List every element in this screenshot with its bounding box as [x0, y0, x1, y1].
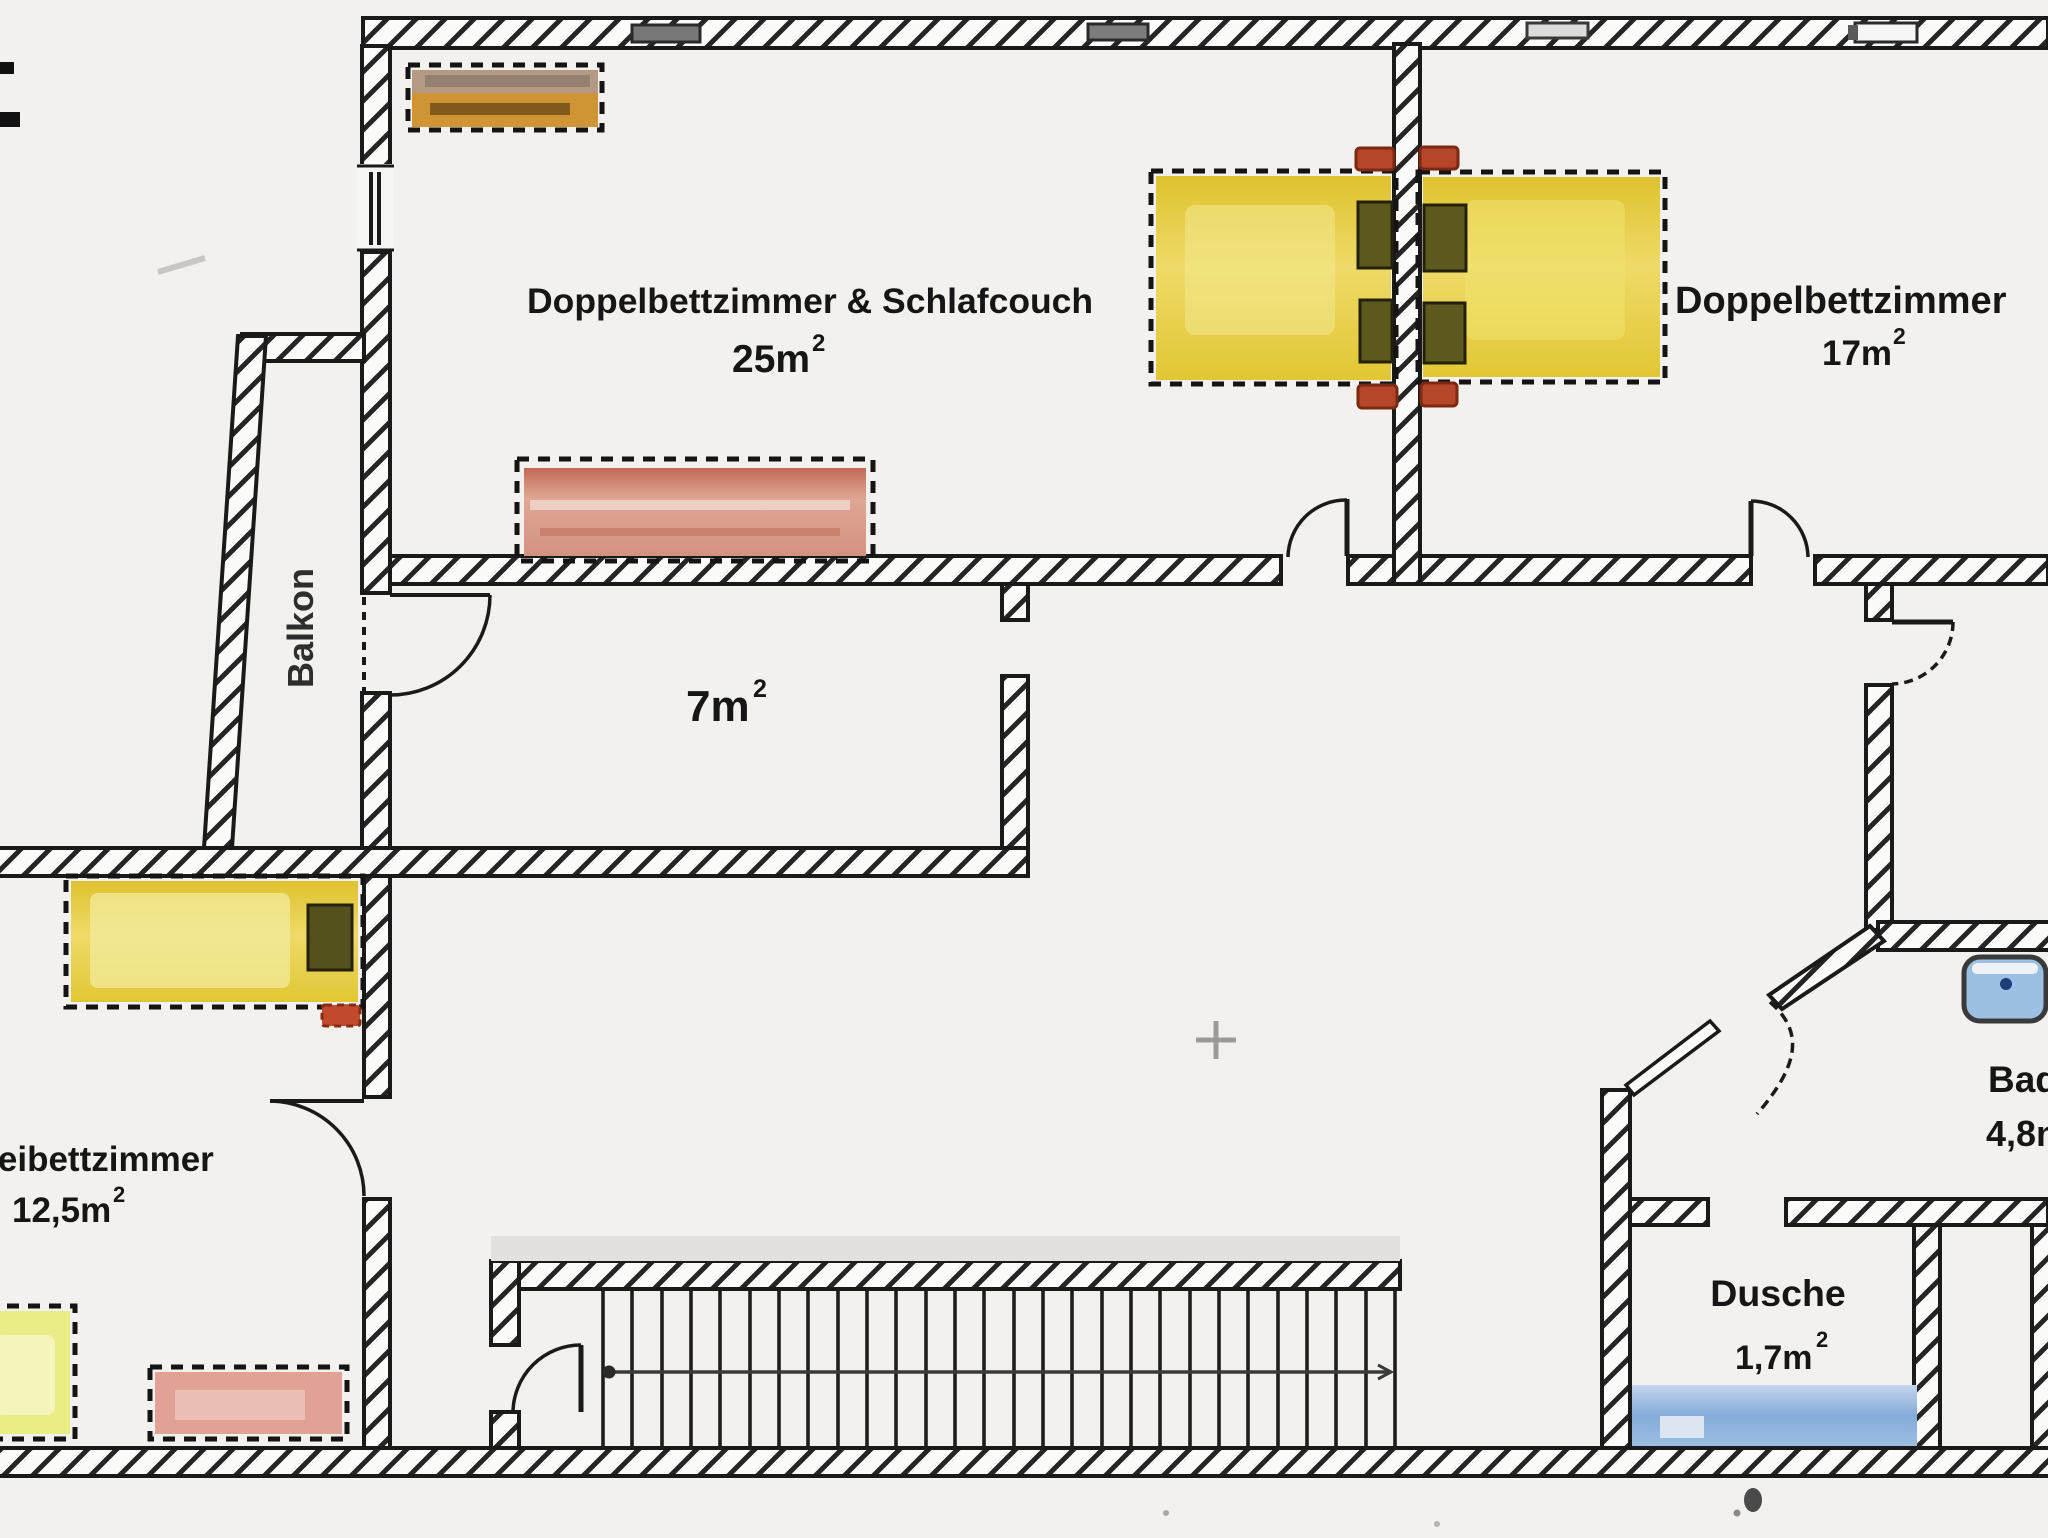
svg-text:2: 2	[113, 1182, 125, 1207]
svg-text:7m: 7m	[686, 682, 750, 731]
svg-text:25m: 25m	[732, 338, 810, 381]
svg-text:Doppelbettzimmer: Doppelbettzimmer	[1675, 280, 2007, 322]
svg-text:Dusche: Dusche	[1710, 1272, 1845, 1314]
svg-text:2: 2	[1816, 1327, 1828, 1352]
svg-text:2: 2	[1893, 323, 1906, 349]
svg-text:1,7m: 1,7m	[1735, 1339, 1813, 1377]
svg-text:2: 2	[812, 330, 825, 357]
svg-text:Bad: Bad	[1988, 1059, 2048, 1100]
svg-text:4,8m: 4,8m	[1986, 1113, 2048, 1154]
svg-text:Balkon: Balkon	[280, 568, 321, 688]
svg-text:17m: 17m	[1822, 334, 1892, 373]
svg-text:12,5m: 12,5m	[12, 1191, 111, 1230]
svg-text:2: 2	[753, 675, 767, 703]
svg-text:Dreibettzimmer: Dreibettzimmer	[0, 1140, 214, 1179]
svg-text:Doppelbettzimmer & Schlafcouch: Doppelbettzimmer & Schlafcouch	[527, 281, 1093, 321]
